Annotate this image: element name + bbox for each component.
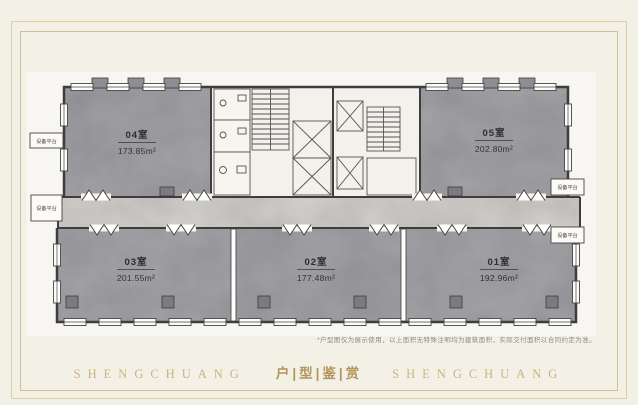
- wall-divider: [401, 229, 406, 321]
- platform-label: 设备平台: [36, 204, 57, 212]
- banner-title: 户|型|鉴|赏: [276, 362, 362, 382]
- room-04: [64, 87, 211, 197]
- room-04-area: 173.85m²: [118, 146, 156, 156]
- room-02-name: 02室: [304, 256, 327, 268]
- floor-plan: 设备平台 设备平台 设备平台 设备平台 04室 173.85m² 05室 202…: [0, 0, 638, 405]
- room-01-name: 01室: [487, 256, 510, 268]
- room-05-area: 202.80m²: [475, 144, 513, 154]
- room-03-name: 03室: [124, 256, 147, 268]
- platform-label: 设备平台: [557, 183, 578, 191]
- disclaimer-text: *户型图仅为展示使用，以上面积无特殊注明均为建筑面积，实际交付面积以合同约定为准…: [317, 334, 596, 344]
- banner-brand-right: SHENGCHUANG: [392, 367, 564, 382]
- room-03-area: 201.55m²: [117, 273, 155, 283]
- banner: SHENGCHUANG 户|型|鉴|赏 SHENGCHUANG: [0, 362, 638, 382]
- room-02-area: 177.48m²: [297, 273, 335, 283]
- room-04-name: 04室: [125, 129, 148, 141]
- corridor: [58, 197, 580, 228]
- room-05: [420, 87, 568, 197]
- platform-label: 设备平台: [557, 231, 578, 239]
- room-05-name: 05室: [482, 127, 505, 139]
- banner-brand-left: SHENGCHUANG: [74, 367, 246, 382]
- wall-divider: [231, 229, 236, 321]
- page-background: 设备平台 设备平台 设备平台 设备平台 04室 173.85m² 05室 202…: [0, 0, 638, 405]
- platform-label: 设备平台: [36, 137, 57, 145]
- room-01-area: 192.96m²: [480, 273, 518, 283]
